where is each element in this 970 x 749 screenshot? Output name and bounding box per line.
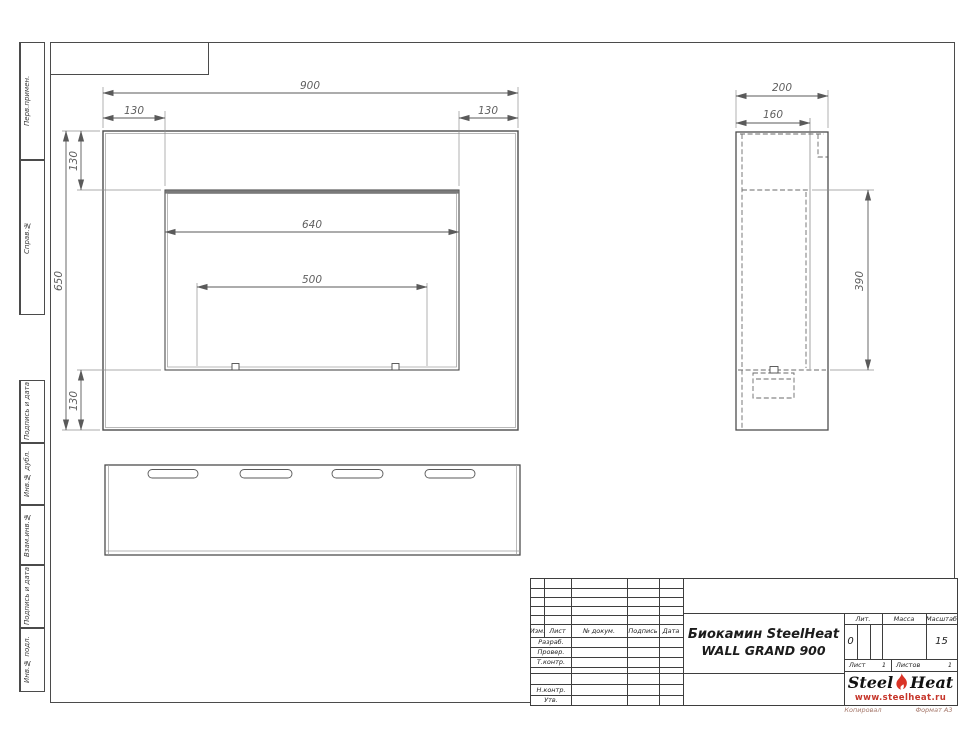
sheet-label: Лист [849,661,865,669]
margin-box-vzam-inv: Взам.инв.№ [19,505,45,565]
company-website: www.steelheat.ru [855,693,946,703]
margin-box-podpis-data-2: Подпись и дата [19,565,45,628]
logo-text-steel: Steel [848,675,893,691]
col-docnum: № докум. [571,624,627,637]
lit-label: Лит. [844,613,882,624]
sheets-label: Листов [896,661,920,669]
margin-box-label: Подпись и дата [20,566,33,627]
document-title: Биокамин SteelHeat WALL GRAND 900 [683,613,844,673]
row-nkontr: Н.контр. [531,684,571,695]
row-prover: Провер. [531,647,571,657]
col-podpis: Подпись [627,624,659,637]
copied-label: Копировал [828,706,898,714]
margin-box-label: Подпись и дата [20,381,33,442]
row-utv: Утв. [531,695,571,705]
col-data: Дата [659,624,683,637]
margin-box-sprav-no: Справ.№ [19,160,45,315]
margin-box-podpis-data-1: Подпись и дата [19,380,45,443]
margin-box-perv-primen: Перв.примен. [19,42,45,160]
lit-value: 0 [844,624,857,659]
margin-box-inv-dubl: Инв.№ дубл. [19,443,45,505]
margin-box-label: Инв.№ подл. [20,629,33,691]
company-logo: Steel Heat www.steelheat.ru [844,671,957,705]
title-block: Изм. Лист № докум. Подпись Дата Разраб. … [530,578,958,706]
company-logo-name: Steel Heat [848,673,953,693]
sheet-cell: Лист 1 [844,659,891,671]
margin-box-label: Перв.примен. [20,43,33,159]
logo-text-heat: Heat [910,675,953,691]
col-list: Лист [544,624,571,637]
scale-value: 15 [926,624,957,659]
margin-box-label: Справ.№ [20,161,33,314]
margin-box-label: Взам.инв.№ [20,506,33,564]
document-title-line1: Биокамин SteelHeat [688,627,839,643]
sheet-number: 1 [882,661,886,669]
document-title-line2: WALL GRAND 900 [701,643,825,659]
format-label: Формат А3 [899,706,969,714]
mass-label: Масса [882,613,926,624]
drawing-sheet: 900 130 130 640 500 130 650 130 [0,0,970,749]
sheets-total: 1 [948,661,952,669]
margin-box-inv-podl: Инв.№ подл. [19,628,45,692]
flame-icon [895,673,909,691]
row-tkontr: Т.контр. [531,657,571,667]
margin-box-label: Инв.№ дубл. [20,444,33,504]
row-razrab: Разраб. [531,637,571,647]
sheets-cell: Листов 1 [891,659,957,671]
scale-label: Масштаб [926,613,957,624]
top-left-stamp-box [50,42,209,75]
col-izm: Изм. [531,624,544,637]
